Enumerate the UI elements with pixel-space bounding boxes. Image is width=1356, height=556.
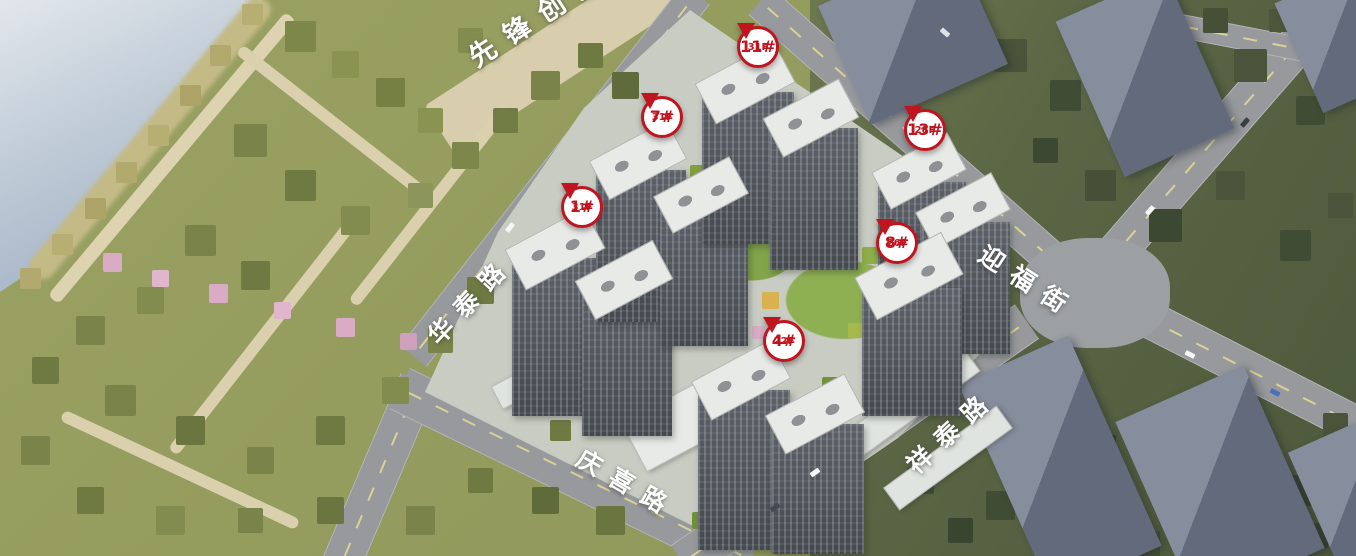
- pin-floors-label: 22F: [774, 337, 795, 347]
- park-path: [168, 204, 368, 456]
- pin-tail: [737, 23, 755, 39]
- pin-tail: [763, 317, 781, 333]
- pin-floors-label: 26F: [887, 239, 908, 249]
- pin-floors-label: 31F: [748, 43, 769, 53]
- site-plan-aerial: 先锋创意 华泰路 迎福街 祥泰路 庆喜路 1# 31F 4# 22F 7# 31…: [0, 0, 1356, 556]
- pin-floors-label: 31F: [652, 113, 673, 123]
- blossom-trees: [0, 0, 1, 1]
- pin-floors-label: 31F: [572, 203, 593, 213]
- park-path: [60, 410, 301, 531]
- pin-tail: [641, 93, 659, 109]
- pin-tail: [904, 106, 922, 122]
- park-path: [236, 44, 425, 195]
- pin-tail: [561, 183, 579, 199]
- pin-tail: [876, 219, 894, 235]
- pin-floors-label: 28F: [915, 126, 936, 136]
